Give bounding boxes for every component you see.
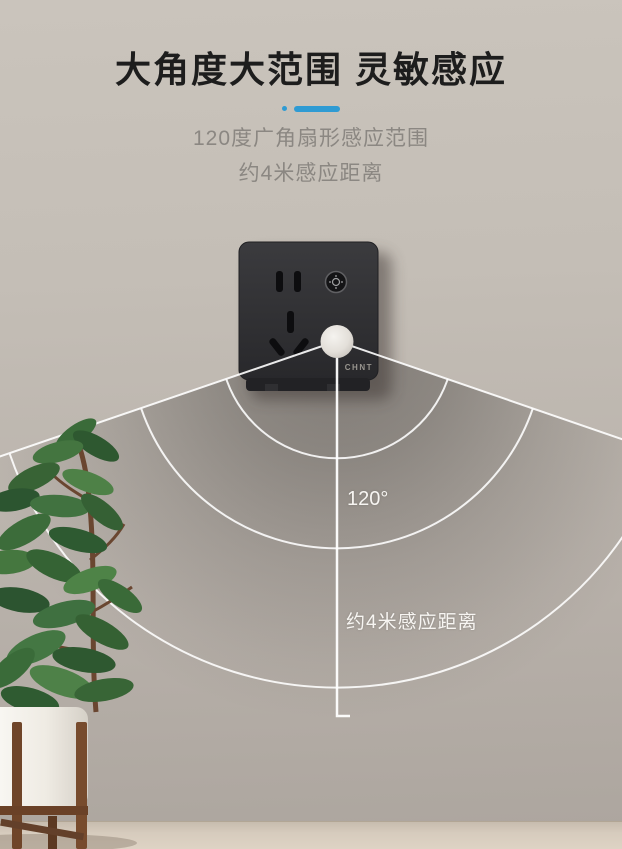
socket-panel [239,242,378,380]
title-accent [0,106,622,112]
page-title: 大角度大范围 灵敏感应 [0,50,622,90]
distance-label: 约4米感应距离 [346,607,478,634]
light-sensor-icon [326,272,347,293]
subtitle-line-2: 约4米感应距离 [0,156,622,191]
subtitle: 120度广角扇形感应范围 约4米感应距离 [0,121,622,191]
socket-bottom-frame [246,378,370,391]
headline-block: 大角度大范围 灵敏感应 120度广角扇形感应范围 约4米感应距离 [0,0,622,191]
socket-frame-notch-left [265,384,278,391]
motion-sensor-dome [321,325,354,358]
brand-logo: CHNT [345,363,373,372]
subtitle-line-1: 120度广角扇形感应范围 [0,121,622,156]
accent-bar [294,106,340,112]
angle-label: 120° [347,488,388,511]
accent-dot [282,106,287,111]
product-banner: CHNT [0,0,622,849]
wall-socket: CHNT [239,242,392,400]
